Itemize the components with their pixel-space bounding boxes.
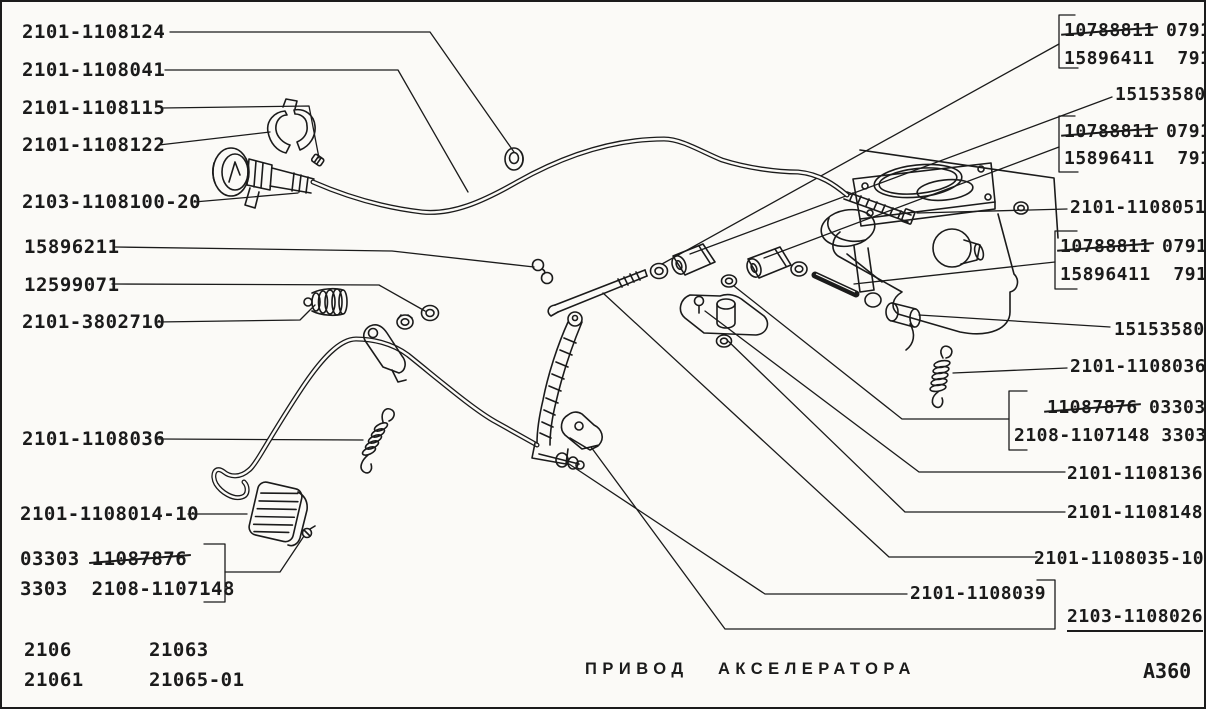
part-label-text: 03303 (20, 548, 92, 570)
superseded-part-number: 11087876 (1047, 397, 1138, 419)
superseded-part-number: 11087876 (92, 548, 188, 570)
part-label: 2101-1108051 (1070, 197, 1206, 219)
part-label: 15896411 791 (1064, 48, 1206, 70)
cable-clip (268, 99, 325, 167)
part-label: 21063 (149, 639, 209, 661)
part-label: 3303 2108-1107148 (20, 578, 235, 600)
catalog-page: 2101-11081242101-11080412101-11081152101… (0, 0, 1206, 709)
part-label: 15153580 (1115, 84, 1206, 106)
part-label: 2101-1108136 (1067, 463, 1203, 485)
part-label: 2101-1108122 (22, 134, 165, 156)
part-label: 10788811 0791 (1064, 121, 1206, 143)
part-label: 2101-1108035-10 (1034, 548, 1204, 570)
part-label: 2103-1108100-20 (22, 191, 201, 213)
part-label: 03303 11087876 (20, 548, 187, 570)
drawing-number: А360 (1143, 659, 1191, 683)
part-label: 21065-01 (149, 669, 245, 691)
part-label-text: 03303 (1138, 397, 1206, 418)
superseded-part-number: 10788811 (1064, 20, 1155, 42)
part-label: 15896411 791 (1060, 264, 1206, 286)
figure-caption-word-1: ПРИВОД (585, 660, 689, 679)
part-label-text: 0791 (1155, 121, 1206, 142)
figure-caption-word-2: АКСЕЛЕРАТОРА (718, 660, 916, 679)
part-label: 11087876 03303 (1047, 397, 1206, 419)
part-label: 2101-1108036 (1070, 356, 1206, 378)
part-label: 2101-1108014-10 (20, 503, 199, 525)
part-label: 15896211 (24, 236, 120, 258)
part-label: 2103-1108026 (1067, 606, 1203, 632)
part-label: 2101-1108039 (910, 583, 1046, 605)
part-label: 2101-1108115 (22, 97, 165, 119)
pedal-assembly (214, 289, 952, 546)
part-label: 15896411 791 (1064, 148, 1206, 170)
part-label-text: 0791 (1151, 236, 1206, 257)
part-label-text: 0791 (1155, 20, 1206, 41)
superseded-part-number: 10788811 (1064, 121, 1155, 143)
part-label: 15153580 (1114, 319, 1205, 341)
part-label: 2101-3802710 (22, 311, 165, 333)
part-label: 2101-1108036 (22, 428, 165, 450)
part-label: 10788811 0791 (1064, 20, 1206, 42)
part-label: 2101-1108124 (22, 21, 165, 43)
carburetor (818, 150, 1058, 350)
part-label: 21061 (24, 669, 84, 691)
superseded-part-number: 10788811 (1060, 236, 1151, 258)
part-label: 12599071 (24, 274, 120, 296)
part-label: 2101-1108041 (22, 59, 165, 81)
clip-pin (311, 154, 325, 167)
control-cable (313, 139, 915, 224)
linkage-parts (533, 244, 857, 347)
part-label: 10788811 0791 (1060, 236, 1206, 258)
part-label: 2101-1108148 (1067, 502, 1203, 524)
part-label: 2106 (24, 639, 72, 661)
part-label: 2108-1107148 3303 (1014, 425, 1206, 447)
